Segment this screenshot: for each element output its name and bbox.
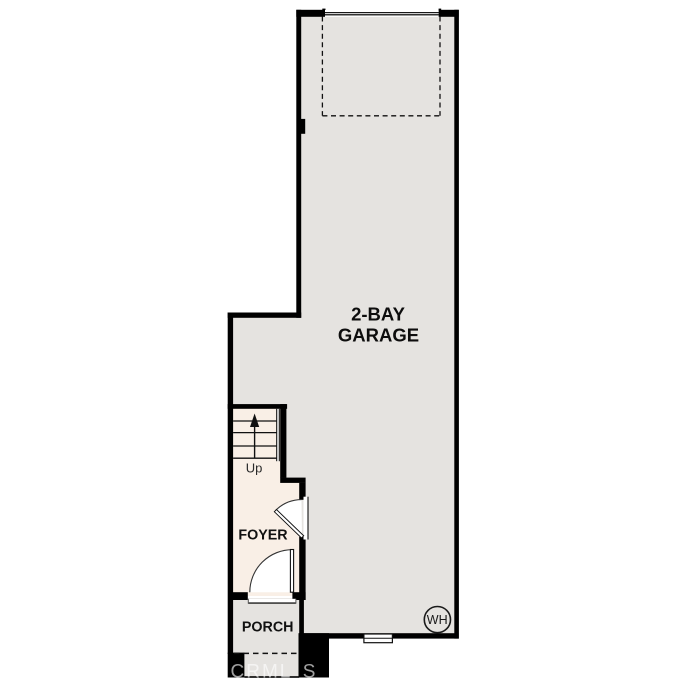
svg-text:PORCH: PORCH [242, 619, 294, 635]
svg-text:Up: Up [246, 460, 263, 475]
svg-text:S: S [303, 661, 316, 682]
svg-text:WH: WH [427, 613, 448, 627]
svg-text:CRML: CRML [231, 661, 293, 682]
svg-text:2-BAY: 2-BAY [351, 304, 405, 325]
svg-text:FOYER: FOYER [238, 528, 288, 544]
svg-text:GARAGE: GARAGE [338, 325, 419, 346]
